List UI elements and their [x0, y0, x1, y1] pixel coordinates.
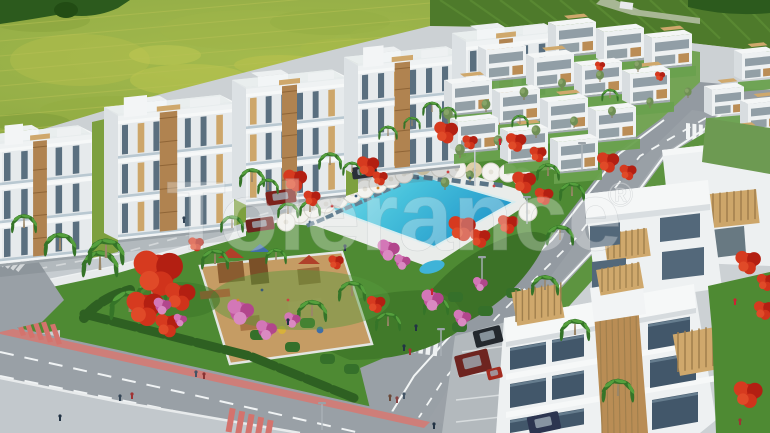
svg-text:Tolerance: Tolerance	[166, 161, 622, 271]
svg-text:®: ®	[608, 176, 633, 214]
